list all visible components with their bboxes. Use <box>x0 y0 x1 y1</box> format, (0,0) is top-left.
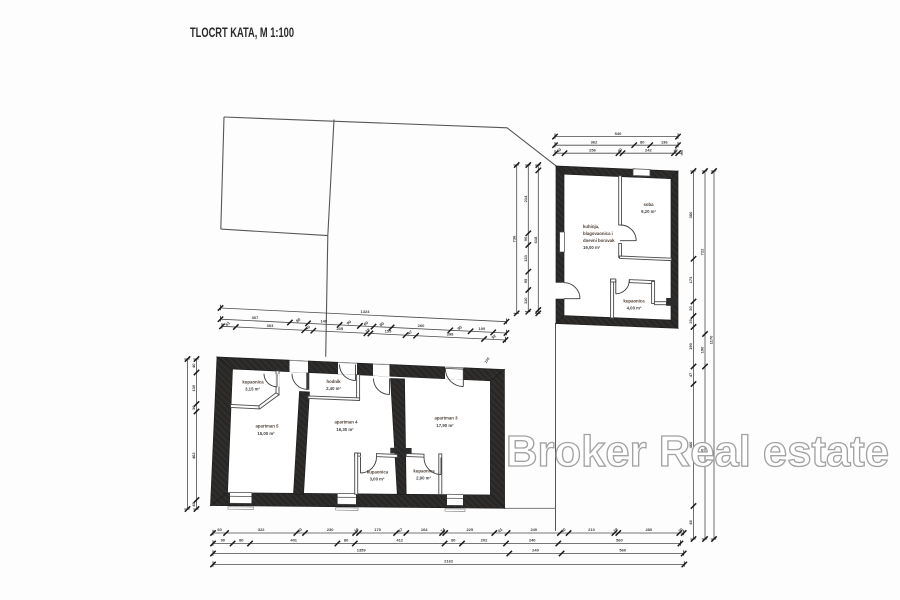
svg-text:362: 362 <box>591 139 598 144</box>
svg-text:412: 412 <box>396 538 403 543</box>
svg-text:9,20 m²: 9,20 m² <box>641 209 656 214</box>
svg-text:133: 133 <box>523 254 528 261</box>
svg-text:230: 230 <box>327 527 334 532</box>
svg-text:560: 560 <box>616 538 623 543</box>
svg-text:140: 140 <box>320 318 327 323</box>
svg-text:360: 360 <box>688 211 693 218</box>
svg-text:80: 80 <box>640 139 645 144</box>
svg-text:1170: 1170 <box>709 335 714 344</box>
svg-text:apartman 5: apartman 5 <box>256 424 280 429</box>
svg-text:3,00 m²: 3,00 m² <box>370 477 385 482</box>
svg-text:110: 110 <box>523 297 528 304</box>
svg-text:164: 164 <box>421 527 428 532</box>
svg-text:19,00 m²: 19,00 m² <box>583 245 601 250</box>
svg-text:214: 214 <box>523 195 528 202</box>
svg-text:apartman 4: apartman 4 <box>335 420 359 425</box>
svg-text:210: 210 <box>588 527 595 532</box>
svg-text:80: 80 <box>239 538 244 543</box>
svg-text:398: 398 <box>447 332 454 337</box>
svg-text:80: 80 <box>451 538 456 543</box>
svg-text:235: 235 <box>336 326 343 331</box>
svg-text:130: 130 <box>191 384 196 391</box>
svg-text:30: 30 <box>688 306 693 311</box>
svg-text:Broker Real estate: Broker Real estate <box>506 428 889 476</box>
svg-text:blagovaonica i: blagovaonica i <box>583 231 613 236</box>
svg-text:90: 90 <box>221 538 226 543</box>
svg-text:kupaonica: kupaonica <box>623 299 645 304</box>
svg-text:100: 100 <box>479 326 486 331</box>
svg-text:322: 322 <box>258 527 265 532</box>
svg-text:540: 540 <box>615 131 622 136</box>
svg-text:190: 190 <box>688 342 693 349</box>
svg-text:170: 170 <box>374 527 381 532</box>
svg-text:190: 190 <box>700 346 705 353</box>
svg-text:kupaonica: kupaonica <box>413 469 435 474</box>
svg-text:173: 173 <box>688 276 693 283</box>
svg-text:136: 136 <box>661 139 668 144</box>
svg-text:kupaonica: kupaonica <box>367 470 389 475</box>
svg-text:202: 202 <box>481 538 488 543</box>
svg-text:2162: 2162 <box>444 559 454 564</box>
svg-text:kuhinja,: kuhinja, <box>583 224 599 229</box>
svg-text:30: 30 <box>191 405 196 410</box>
svg-text:736: 736 <box>511 235 516 242</box>
svg-text:240: 240 <box>529 538 536 543</box>
svg-text:dnevni boravak: dnevni boravak <box>583 238 615 243</box>
svg-text:40: 40 <box>191 363 196 368</box>
svg-text:155: 155 <box>385 329 392 334</box>
svg-text:45: 45 <box>191 502 196 507</box>
svg-text:256: 256 <box>589 147 596 152</box>
svg-text:240: 240 <box>532 548 539 553</box>
svg-text:303: 303 <box>267 323 274 328</box>
svg-text:3,15 m²: 3,15 m² <box>245 387 260 392</box>
svg-text:hodnik: hodnik <box>326 379 341 384</box>
svg-text:1324: 1324 <box>361 309 371 314</box>
svg-text:2,90 m²: 2,90 m² <box>416 476 431 481</box>
svg-text:45: 45 <box>688 520 693 525</box>
svg-text:apartman 3: apartman 3 <box>435 416 459 421</box>
svg-text:17,90 m²: 17,90 m² <box>436 423 454 428</box>
svg-text:307: 307 <box>252 315 259 320</box>
svg-text:95: 95 <box>523 278 528 283</box>
svg-text:25: 25 <box>688 319 693 324</box>
svg-text:280: 280 <box>645 527 652 532</box>
svg-text:240: 240 <box>530 527 537 532</box>
svg-text:1359: 1359 <box>357 548 367 553</box>
svg-text:560: 560 <box>619 548 626 553</box>
svg-text:90: 90 <box>523 236 528 241</box>
svg-text:225: 225 <box>466 527 473 532</box>
svg-text:242: 242 <box>645 147 652 152</box>
svg-text:722: 722 <box>700 248 705 255</box>
svg-text:15,00 m²: 15,00 m² <box>257 431 275 436</box>
svg-text:47: 47 <box>688 372 693 377</box>
svg-text:kupaonica: kupaonica <box>242 380 264 385</box>
svg-text:401: 401 <box>290 538 297 543</box>
svg-text:TLOCRT KATA, M 1:100: TLOCRT KATA, M 1:100 <box>190 25 294 41</box>
svg-text:60: 60 <box>217 527 222 532</box>
svg-text:2,40 m²: 2,40 m² <box>326 386 341 391</box>
svg-text:260: 260 <box>418 323 425 328</box>
svg-text:soba: soba <box>643 202 654 207</box>
svg-text:4,00 m²: 4,00 m² <box>627 306 642 311</box>
svg-text:618: 618 <box>533 236 538 243</box>
svg-text:16,30 m²: 16,30 m² <box>336 427 354 432</box>
svg-text:462: 462 <box>191 452 196 459</box>
svg-text:80: 80 <box>344 538 349 543</box>
